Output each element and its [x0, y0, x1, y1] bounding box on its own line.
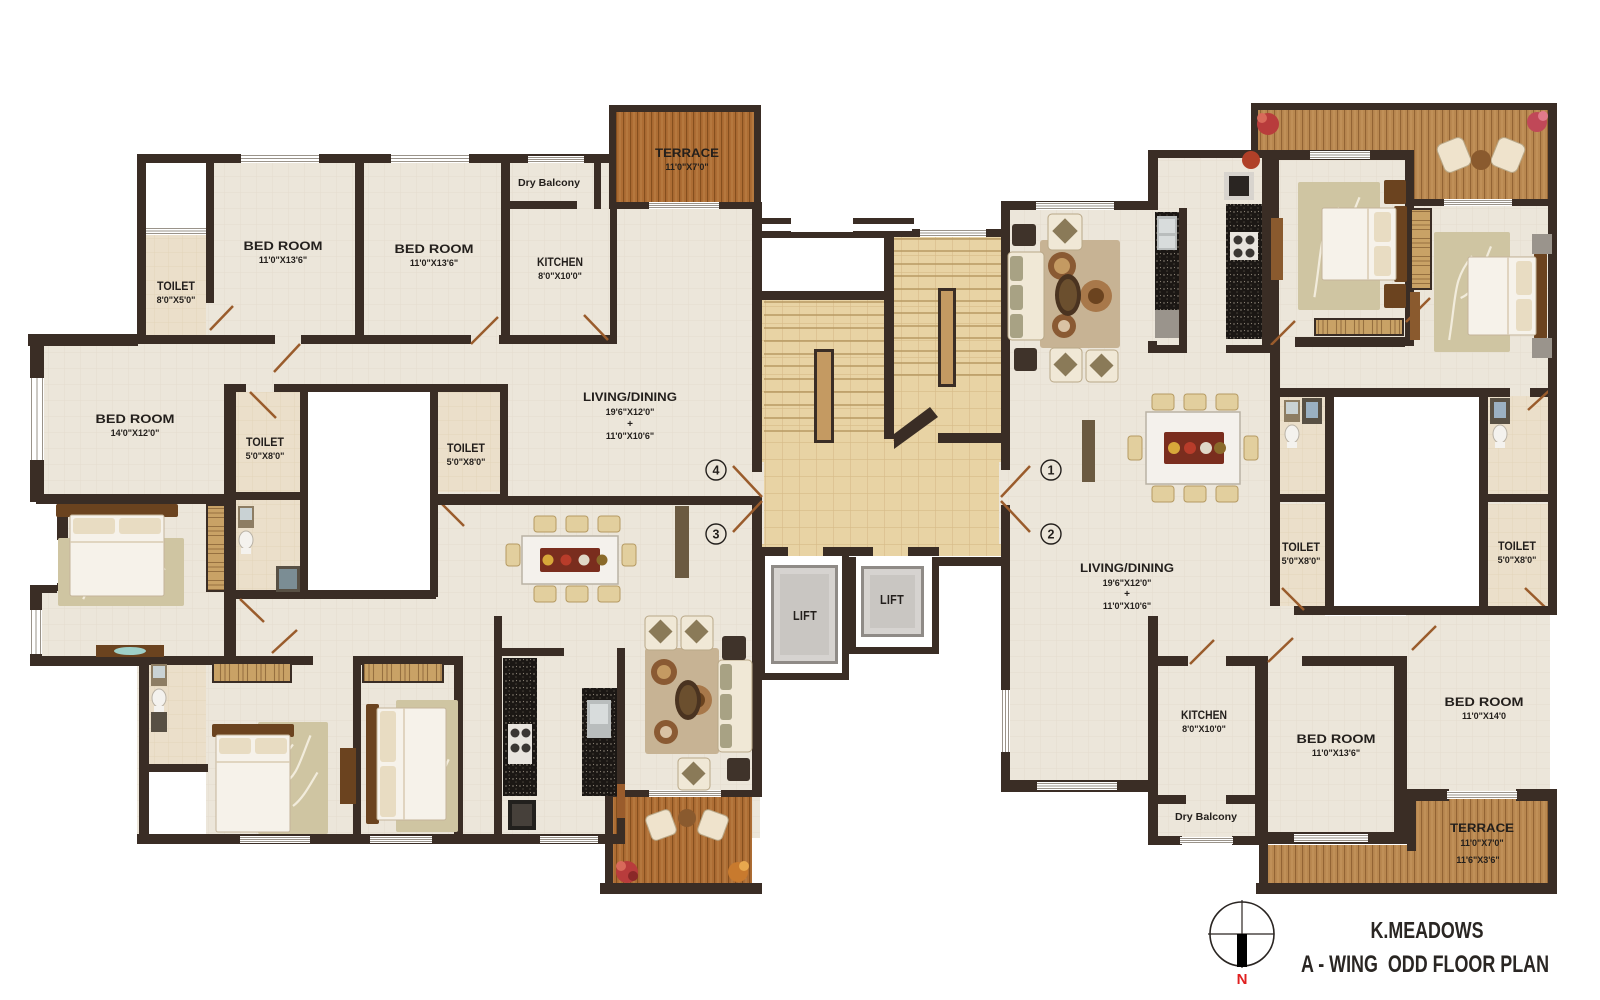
svg-text:LIVING/DINING: LIVING/DINING: [1080, 561, 1174, 575]
svg-text:8'0"X10'0": 8'0"X10'0": [1182, 724, 1226, 734]
svg-text:11'0"X7'0": 11'0"X7'0": [665, 162, 708, 172]
svg-text:TOILET: TOILET: [246, 435, 285, 449]
svg-text:TERRACE: TERRACE: [655, 146, 719, 160]
svg-text:11'0"X13'6": 11'0"X13'6": [259, 255, 307, 265]
svg-text:11'6"X3'6": 11'6"X3'6": [1456, 855, 1499, 865]
svg-text:BED ROOM: BED ROOM: [1297, 732, 1376, 746]
svg-text:11'0"X13'6": 11'0"X13'6": [410, 258, 458, 268]
svg-text:A - WING ODD FLOOR PLAN: A - WING ODD FLOOR PLAN: [1301, 951, 1549, 978]
svg-text:KITCHEN: KITCHEN: [537, 255, 583, 269]
svg-text:TOILET: TOILET: [157, 279, 196, 293]
svg-text:1: 1: [1048, 464, 1055, 478]
svg-text:5'0"X8'0": 5'0"X8'0": [447, 457, 486, 467]
svg-text:TERRACE: TERRACE: [1450, 821, 1514, 835]
svg-text:19'6"X12'0": 19'6"X12'0": [1103, 578, 1152, 588]
svg-text:+: +: [627, 419, 633, 430]
svg-text:4: 4: [713, 464, 720, 478]
svg-text:3: 3: [713, 528, 720, 542]
svg-text:14'0"X12'0": 14'0"X12'0": [111, 428, 160, 438]
svg-text:19'6"X12'0": 19'6"X12'0": [606, 407, 655, 417]
svg-text:11'0"X13'6": 11'0"X13'6": [1312, 748, 1360, 758]
svg-text:+: +: [1124, 589, 1130, 600]
svg-text:11'0"X7'0": 11'0"X7'0": [1460, 838, 1503, 848]
svg-text:K.MEADOWS: K.MEADOWS: [1371, 917, 1484, 943]
svg-text:BED ROOM: BED ROOM: [244, 239, 323, 253]
svg-text:Dry Balcony: Dry Balcony: [1175, 811, 1237, 823]
svg-text:8'0"X10'0": 8'0"X10'0": [538, 271, 582, 281]
svg-text:5'0"X8'0": 5'0"X8'0": [1282, 556, 1321, 566]
svg-text:LIVING/DINING: LIVING/DINING: [583, 390, 677, 404]
svg-text:11'0"X10'6": 11'0"X10'6": [606, 431, 654, 441]
svg-text:Dry Balcony: Dry Balcony: [518, 177, 580, 189]
svg-text:8'0"X5'0": 8'0"X5'0": [157, 295, 196, 305]
svg-text:KITCHEN: KITCHEN: [1181, 708, 1227, 722]
svg-text:BED ROOM: BED ROOM: [1445, 695, 1524, 709]
svg-text:TOILET: TOILET: [447, 441, 486, 455]
svg-text:11'0"X14'0: 11'0"X14'0: [1462, 711, 1506, 721]
svg-text:5'0"X8'0": 5'0"X8'0": [1498, 555, 1537, 565]
svg-text:TOILET: TOILET: [1282, 540, 1321, 554]
svg-text:5'0"X8'0": 5'0"X8'0": [246, 451, 285, 461]
svg-text:BED ROOM: BED ROOM: [395, 242, 474, 256]
svg-text:11'0"X10'6": 11'0"X10'6": [1103, 601, 1151, 611]
svg-text:BED ROOM: BED ROOM: [96, 412, 175, 426]
svg-text:LIFT: LIFT: [793, 608, 817, 623]
svg-text:LIFT: LIFT: [880, 592, 904, 607]
svg-text:N: N: [1237, 971, 1248, 988]
svg-text:TOILET: TOILET: [1498, 539, 1537, 553]
svg-text:2: 2: [1048, 528, 1055, 542]
